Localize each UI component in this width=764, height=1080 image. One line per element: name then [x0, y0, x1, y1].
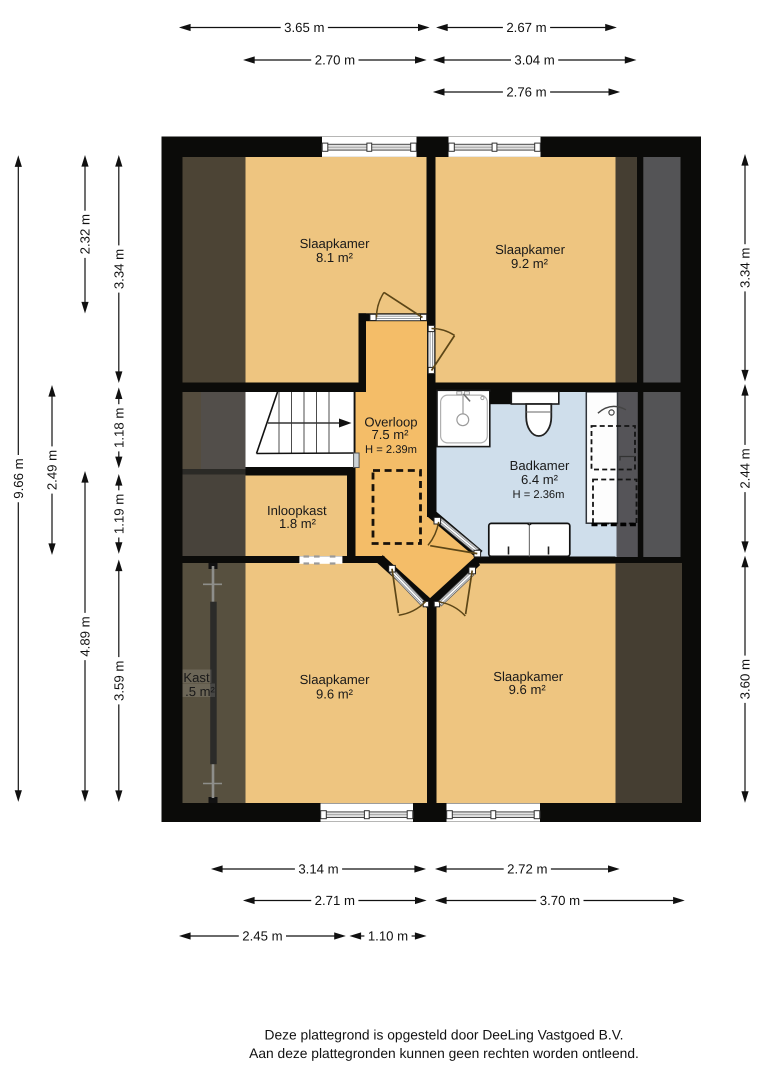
svg-text:3.65 m: 3.65 m — [284, 20, 324, 35]
svg-text:2.70 m: 2.70 m — [315, 53, 355, 68]
svg-text:Slaapkamer: Slaapkamer — [300, 236, 371, 251]
svg-text:3.04 m: 3.04 m — [514, 53, 554, 68]
svg-text:2.67 m: 2.67 m — [506, 20, 546, 35]
svg-text:Aan deze plattegronden kunnen: Aan deze plattegronden kunnen geen recht… — [249, 1046, 639, 1061]
svg-text:2.45 m: 2.45 m — [242, 929, 282, 944]
svg-text:Deze plattegrond is opgesteld: Deze plattegrond is opgesteld door DeeLi… — [265, 1028, 624, 1043]
svg-text:3.34 m: 3.34 m — [112, 249, 127, 289]
svg-text:3.14 m: 3.14 m — [298, 862, 338, 877]
svg-text:H = 2.36m: H = 2.36m — [513, 489, 565, 501]
svg-text:9.6 m²: 9.6 m² — [316, 686, 354, 701]
svg-text:2.72 m: 2.72 m — [507, 862, 547, 877]
svg-text:4.89 m: 4.89 m — [78, 616, 93, 656]
svg-text:2.32 m: 2.32 m — [78, 214, 93, 254]
svg-text:3.70 m: 3.70 m — [540, 893, 580, 908]
svg-text:3.34 m: 3.34 m — [738, 248, 753, 288]
svg-text:9.66 m: 9.66 m — [11, 458, 26, 498]
svg-text:H = 2.39m: H = 2.39m — [365, 444, 417, 456]
svg-text:8.1 m²: 8.1 m² — [316, 250, 354, 265]
svg-text:.5 m²: .5 m² — [185, 684, 215, 699]
svg-text:1.8 m²: 1.8 m² — [279, 516, 317, 531]
svg-text:9.2 m²: 9.2 m² — [511, 256, 549, 271]
svg-text:2.76 m: 2.76 m — [506, 85, 546, 100]
svg-text:1.10 m: 1.10 m — [368, 929, 408, 944]
svg-text:Slaapkamer: Slaapkamer — [300, 672, 371, 687]
svg-text:1.18 m: 1.18 m — [112, 408, 127, 448]
svg-text:2.49 m: 2.49 m — [45, 450, 60, 490]
svg-text:Slaapkamer: Slaapkamer — [495, 242, 566, 257]
svg-text:7.5 m²: 7.5 m² — [371, 427, 409, 442]
svg-text:3.60 m: 3.60 m — [738, 659, 753, 699]
svg-text:2.44 m: 2.44 m — [738, 448, 753, 488]
svg-text:3.59 m: 3.59 m — [112, 661, 127, 701]
svg-text:9.6 m²: 9.6 m² — [509, 682, 547, 697]
svg-text:1.19 m: 1.19 m — [112, 494, 127, 534]
svg-text:6.4 m²: 6.4 m² — [521, 472, 559, 487]
svg-text:2.71 m: 2.71 m — [315, 893, 355, 908]
